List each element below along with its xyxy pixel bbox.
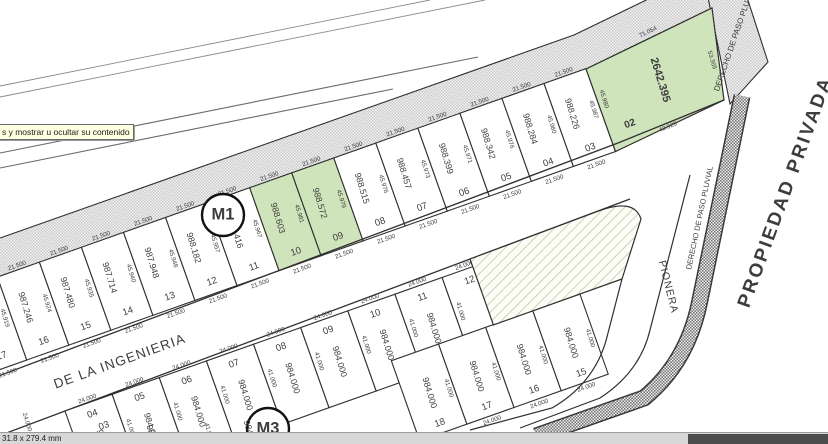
- tooltip: s y mostrar u ocultar su contenido: [0, 124, 134, 140]
- plan-canvas[interactable]: 17987.01245.91921.50021.50016987.24645.9…: [0, 0, 828, 444]
- status-dimensions-text: 31.8 x 279.4 mm: [2, 434, 62, 443]
- road-edge-line: [0, 0, 485, 97]
- road-edge-line: [0, 0, 430, 86]
- drawing-viewer: 17987.01245.91921.50021.50016987.24645.9…: [0, 0, 828, 444]
- street-label-pionera: PIONERA: [656, 259, 681, 315]
- block-marker-label: M1: [212, 205, 235, 223]
- cutoff-label: 24.000: [21, 412, 33, 433]
- status-bar: 31.8 x 279.4 mm: [0, 432, 828, 444]
- status-bar-dark-segment: [688, 434, 828, 444]
